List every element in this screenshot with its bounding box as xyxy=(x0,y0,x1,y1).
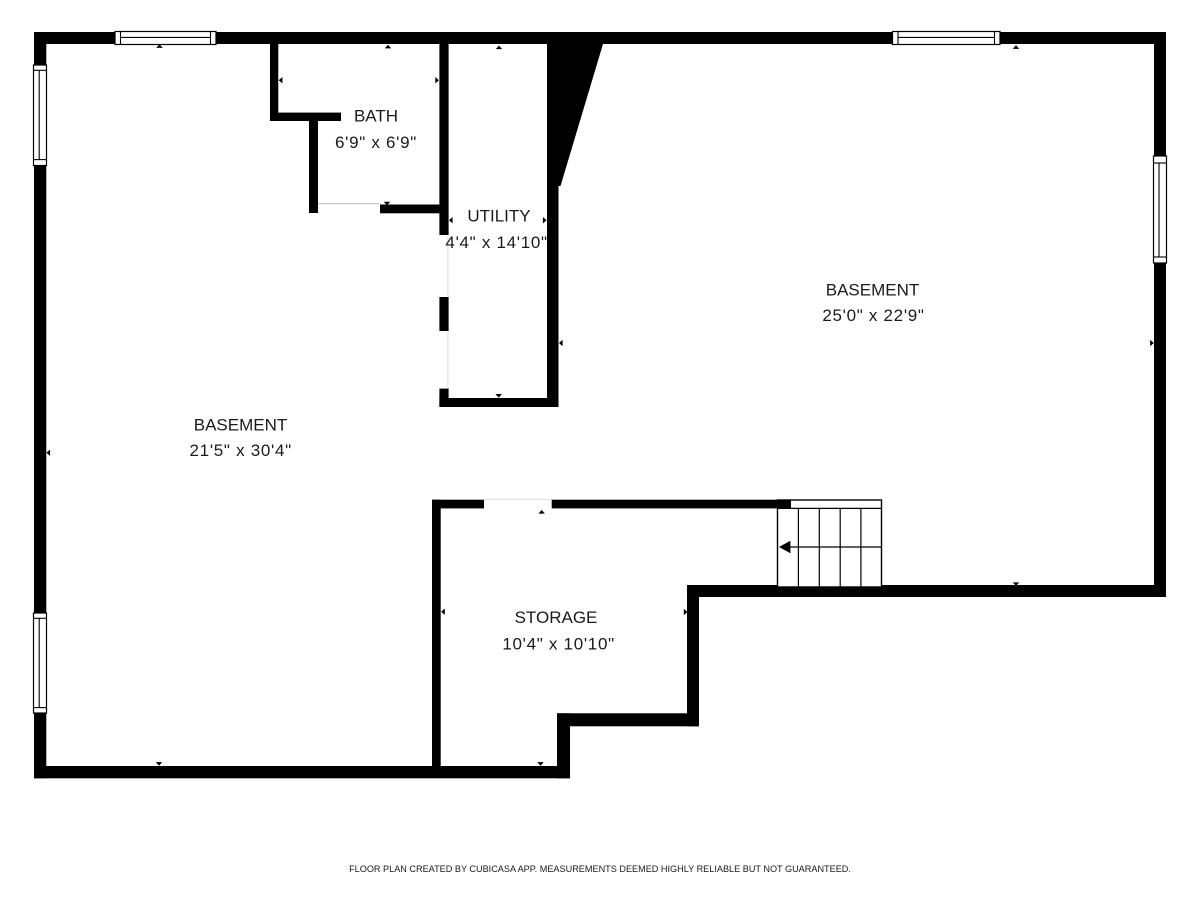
svg-text:6'9" x 6'9": 6'9" x 6'9" xyxy=(335,133,417,152)
svg-text:21'5" x 30'4": 21'5" x 30'4" xyxy=(190,441,292,460)
svg-text:STORAGE: STORAGE xyxy=(515,608,598,627)
svg-text:FLOOR PLAN CREATED BY CUBICASA: FLOOR PLAN CREATED BY CUBICASA APP. MEAS… xyxy=(349,864,851,874)
svg-text:BASEMENT: BASEMENT xyxy=(826,280,920,299)
svg-text:UTILITY: UTILITY xyxy=(467,207,530,226)
svg-text:BASEMENT: BASEMENT xyxy=(194,416,288,435)
svg-text:BATH: BATH xyxy=(354,107,398,126)
svg-text:10'4" x 10'10": 10'4" x 10'10" xyxy=(502,635,615,654)
svg-text:4'4" x 14'10": 4'4" x 14'10" xyxy=(445,233,547,252)
svg-text:25'0" x 22'9": 25'0" x 22'9" xyxy=(822,306,924,325)
